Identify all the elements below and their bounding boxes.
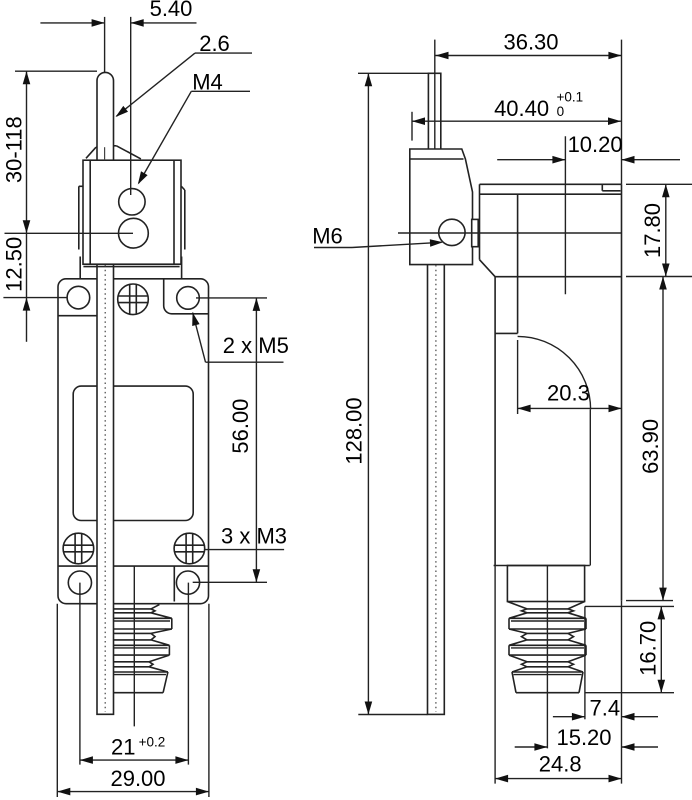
svg-text:17.80: 17.80: [640, 203, 665, 258]
svg-text:3 x M3: 3 x M3: [221, 524, 287, 549]
svg-text:36.30: 36.30: [503, 30, 558, 55]
svg-text:63.90: 63.90: [638, 419, 663, 474]
svg-text:+0.2: +0.2: [139, 734, 166, 749]
svg-text:10.20: 10.20: [568, 132, 623, 157]
svg-text:M4: M4: [192, 69, 223, 94]
svg-text:7.4: 7.4: [590, 695, 621, 720]
svg-text:29.00: 29.00: [110, 766, 165, 791]
svg-text:16.70: 16.70: [636, 621, 661, 676]
svg-text:128.00: 128.00: [341, 397, 366, 464]
svg-text:30-118: 30-118: [2, 116, 27, 183]
svg-text:21: 21: [111, 734, 135, 759]
svg-text:56.00: 56.00: [228, 399, 253, 454]
svg-text:24.8: 24.8: [539, 751, 582, 776]
svg-text:2.6: 2.6: [199, 31, 230, 56]
svg-text:M6: M6: [312, 223, 343, 248]
svg-text:12.50: 12.50: [1, 237, 26, 292]
svg-text:15.20: 15.20: [556, 725, 611, 750]
svg-text:+0.1: +0.1: [556, 90, 583, 105]
svg-text:40.40: 40.40: [494, 96, 549, 121]
svg-text:5.40: 5.40: [150, 0, 193, 21]
svg-text:0: 0: [557, 104, 565, 119]
svg-text:20.3: 20.3: [547, 380, 590, 405]
